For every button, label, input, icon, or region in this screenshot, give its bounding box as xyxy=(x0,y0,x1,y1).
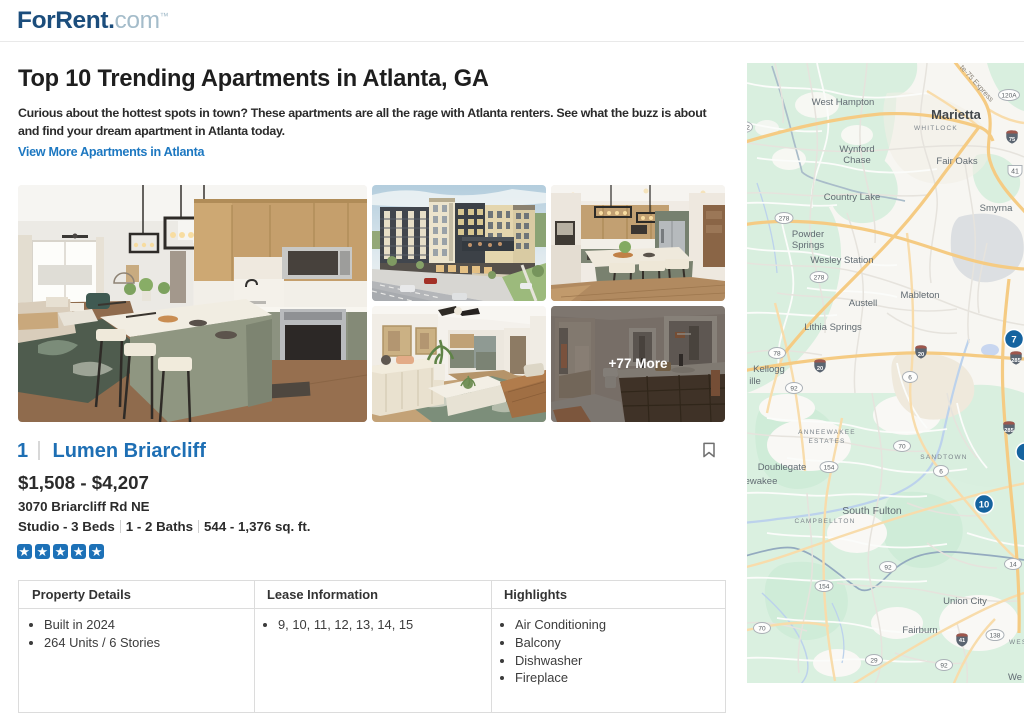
svg-text:SANDTOWN: SANDTOWN xyxy=(920,454,967,461)
svg-text:Powder: Powder xyxy=(792,229,824,240)
svg-text:78: 78 xyxy=(773,351,781,358)
svg-text:41: 41 xyxy=(1011,169,1019,176)
svg-text:Fairburn: Fairburn xyxy=(902,625,937,636)
svg-text:154: 154 xyxy=(824,465,835,472)
svg-text:Wynford: Wynford xyxy=(839,144,874,155)
svg-text:75: 75 xyxy=(1009,137,1016,143)
svg-text:ille: ille xyxy=(749,376,761,387)
svg-text:7: 7 xyxy=(1011,335,1016,346)
svg-text:Kellogg: Kellogg xyxy=(753,364,785,375)
svg-text:70: 70 xyxy=(898,444,906,451)
svg-text:ESTATES: ESTATES xyxy=(808,438,845,445)
svg-text:154: 154 xyxy=(819,584,830,591)
svg-text:6: 6 xyxy=(908,375,912,382)
svg-text:70: 70 xyxy=(758,626,766,633)
svg-text:92: 92 xyxy=(884,565,892,572)
svg-text:South Fulton: South Fulton xyxy=(842,505,902,517)
svg-text:Country Lake: Country Lake xyxy=(824,192,881,203)
svg-text:CAMPBELLTON: CAMPBELLTON xyxy=(794,518,855,525)
svg-text:Springs: Springs xyxy=(792,240,824,251)
svg-text:Union City: Union City xyxy=(943,596,987,607)
svg-text:Mableton: Mableton xyxy=(900,290,939,301)
svg-text:Doublegate: Doublegate xyxy=(758,462,807,473)
svg-text:10: 10 xyxy=(979,500,990,511)
svg-text:Austell: Austell xyxy=(849,298,878,309)
svg-text:Marietta: Marietta xyxy=(931,107,982,122)
svg-text:We: We xyxy=(1008,672,1022,683)
svg-text:Smyrna: Smyrna xyxy=(980,203,1013,214)
svg-text:Lithia Springs: Lithia Springs xyxy=(804,322,862,333)
svg-text:92: 92 xyxy=(790,386,798,393)
svg-text:ewakee: ewakee xyxy=(747,476,777,487)
svg-text:6: 6 xyxy=(939,469,943,476)
svg-text:ANNEEWAKEE: ANNEEWAKEE xyxy=(798,429,856,436)
svg-text:29: 29 xyxy=(870,658,878,665)
svg-text:92: 92 xyxy=(940,663,948,670)
svg-text:138: 138 xyxy=(990,633,1001,640)
svg-text:278: 278 xyxy=(814,275,825,282)
svg-text:WHITLOCK: WHITLOCK xyxy=(914,125,958,132)
svg-text:Chase: Chase xyxy=(843,155,870,166)
svg-text:West Hampton: West Hampton xyxy=(812,97,875,108)
svg-text:WEST: WEST xyxy=(1009,639,1024,646)
svg-text:14: 14 xyxy=(1009,562,1017,569)
svg-text:2: 2 xyxy=(747,125,750,132)
svg-text:120A: 120A xyxy=(1001,93,1017,100)
svg-text:Fair Oaks: Fair Oaks xyxy=(936,156,977,167)
svg-text:Wesley Station: Wesley Station xyxy=(810,255,873,266)
svg-text:41: 41 xyxy=(959,638,966,644)
svg-text:285: 285 xyxy=(1004,428,1014,434)
svg-text:285: 285 xyxy=(1011,358,1021,364)
svg-text:20: 20 xyxy=(918,352,924,358)
svg-text:278: 278 xyxy=(779,216,790,223)
svg-text:20: 20 xyxy=(817,366,823,372)
